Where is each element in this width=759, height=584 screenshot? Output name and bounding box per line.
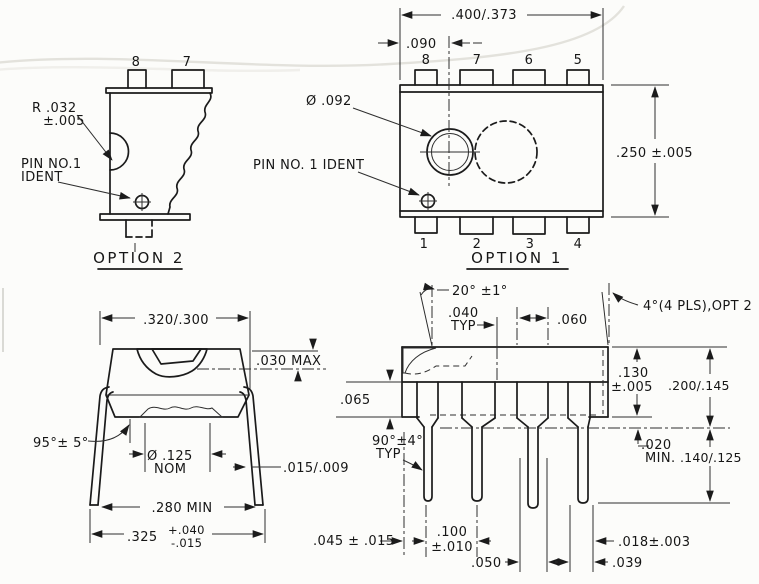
option2-view: 8 7 R .032 ±.005 PIN NO.1 IDENT OPTION 2 bbox=[21, 55, 212, 269]
left-lead-inner bbox=[98, 392, 113, 505]
lead-bend-dim-line2: TYP bbox=[375, 447, 401, 462]
bottom-cap bbox=[100, 214, 190, 220]
bevel-width-dim-line2: TYP bbox=[450, 319, 476, 334]
page-curl-echo bbox=[0, 67, 300, 71]
option1-title: OPTION 1 bbox=[471, 249, 563, 267]
body-broken-edge bbox=[168, 93, 211, 214]
body-outline bbox=[400, 85, 603, 217]
mechanical-drawing-page: 8 7 R .032 ±.005 PIN NO.1 IDENT OPTION 2 bbox=[0, 0, 759, 584]
tip-width-dim: .039 bbox=[612, 556, 643, 571]
pin-7-tab bbox=[172, 70, 204, 88]
pin-1-label: 1 bbox=[420, 237, 429, 252]
pin-7-tab bbox=[460, 70, 493, 85]
angle-arc-arrow bbox=[613, 293, 638, 305]
package-outline-drawing: 8 7 R .032 ±.005 PIN NO.1 IDENT OPTION 2 bbox=[0, 0, 759, 584]
pin-8-tab bbox=[415, 70, 437, 85]
lens-dia-dim-line2: NOM bbox=[154, 462, 186, 477]
bevel-angle-line bbox=[420, 292, 432, 346]
lens-cavity-inner bbox=[152, 349, 201, 364]
option2-title: OPTION 2 bbox=[93, 249, 185, 267]
shoulder-height-dim: .065 bbox=[340, 393, 371, 408]
body-thickness-dim-line1: .130 bbox=[618, 366, 649, 381]
lead-pin-4 bbox=[578, 427, 588, 503]
pin1-ident-leader bbox=[58, 182, 130, 198]
pin1-ident-callout: PIN NO. 1 IDENT bbox=[253, 158, 364, 173]
side-view: 20° ±1° .040 TYP .060 4°(4 PLS),OPT 2 .1… bbox=[313, 283, 752, 572]
lead-thickness-dim: .015/.009 bbox=[283, 461, 349, 476]
option1-view: 8 7 6 5 1 2 3 4 .400/.373 .090 .250 ±.00… bbox=[253, 8, 693, 269]
span-tol-plus: +.040 bbox=[168, 523, 205, 537]
draft-angle-line bbox=[602, 292, 608, 345]
shoulder-width-dim: .060 bbox=[557, 313, 588, 328]
pin-4-tab bbox=[567, 217, 589, 233]
pin-1-tab bbox=[415, 217, 437, 233]
draft-angle-dim: 4°(4 PLS),OPT 2 bbox=[643, 299, 752, 314]
pin-8-label: 8 bbox=[132, 55, 141, 70]
body-width-dim: .320/.300 bbox=[143, 313, 209, 328]
pin-8-label: 8 bbox=[422, 53, 431, 68]
hidden-lens-edge bbox=[405, 356, 472, 374]
pin-5-label: 5 bbox=[574, 53, 583, 68]
lead-splay-angle-dim: 95°± 5° bbox=[33, 436, 89, 451]
overall-width-dim: .400/.373 bbox=[451, 8, 517, 23]
span-tol-minus: -.015 bbox=[171, 536, 202, 550]
overall-height-dim: .200/.145 bbox=[668, 378, 730, 393]
pin1-ident-callout-line2: IDENT bbox=[21, 170, 63, 185]
span-dim-value: .325 bbox=[127, 530, 158, 545]
standoff-dim-line2: MIN. bbox=[645, 451, 676, 466]
pin-4-label: 4 bbox=[574, 237, 583, 252]
lead-pin-3 bbox=[528, 427, 538, 508]
pitch-dim-line1: .100 bbox=[437, 525, 468, 540]
pin-8-tab bbox=[128, 70, 146, 88]
lead-shoulders bbox=[417, 382, 590, 427]
end-view: .320/.300 .030 MAX 95°± 5° Ø .125 NOM .0… bbox=[33, 311, 349, 550]
lens-leader bbox=[353, 108, 431, 136]
body-thickness-dim-line2: ±.005 bbox=[611, 380, 653, 395]
pin1-ident-leader bbox=[358, 172, 419, 195]
lead-length-dim: .140/.125 bbox=[680, 450, 742, 465]
lead-pin-1 bbox=[424, 427, 432, 501]
lens-offset-dim: .090 bbox=[406, 37, 437, 52]
pin-6-label: 6 bbox=[525, 53, 534, 68]
radius-leader bbox=[77, 115, 112, 160]
corner-radius-arc bbox=[110, 133, 128, 170]
lead-width-dim: .018±.003 bbox=[618, 535, 690, 550]
bevel-angle-dim: 20° ±1° bbox=[452, 284, 508, 299]
pin-5-tab bbox=[567, 70, 589, 85]
pitch-dim-line2: ±.010 bbox=[431, 540, 473, 555]
lens-diameter-callout: Ø .092 bbox=[306, 94, 352, 109]
bevel-hatch bbox=[403, 348, 436, 373]
tip-offset-dim: .050 bbox=[471, 556, 502, 571]
top-cap bbox=[106, 88, 212, 93]
pin-7-label: 7 bbox=[183, 55, 192, 70]
pin-6-tab bbox=[513, 70, 545, 85]
end-clearance-dim: .045 ± .015 bbox=[313, 534, 394, 549]
lead-pin-2 bbox=[472, 427, 482, 501]
pin-2-tab bbox=[460, 217, 493, 234]
die-pad-hatch bbox=[140, 407, 222, 417]
hidden-circle bbox=[475, 121, 537, 183]
dome-height-dim: .030 MAX bbox=[256, 354, 321, 369]
body-height-dim: .250 ±.005 bbox=[616, 146, 693, 161]
angle-leader-arc bbox=[88, 425, 129, 441]
span-min-dim: .280 MIN bbox=[151, 501, 212, 516]
angle-leader bbox=[403, 460, 422, 470]
pin-3-tab bbox=[513, 217, 545, 234]
pin-7-label: 7 bbox=[473, 53, 482, 68]
